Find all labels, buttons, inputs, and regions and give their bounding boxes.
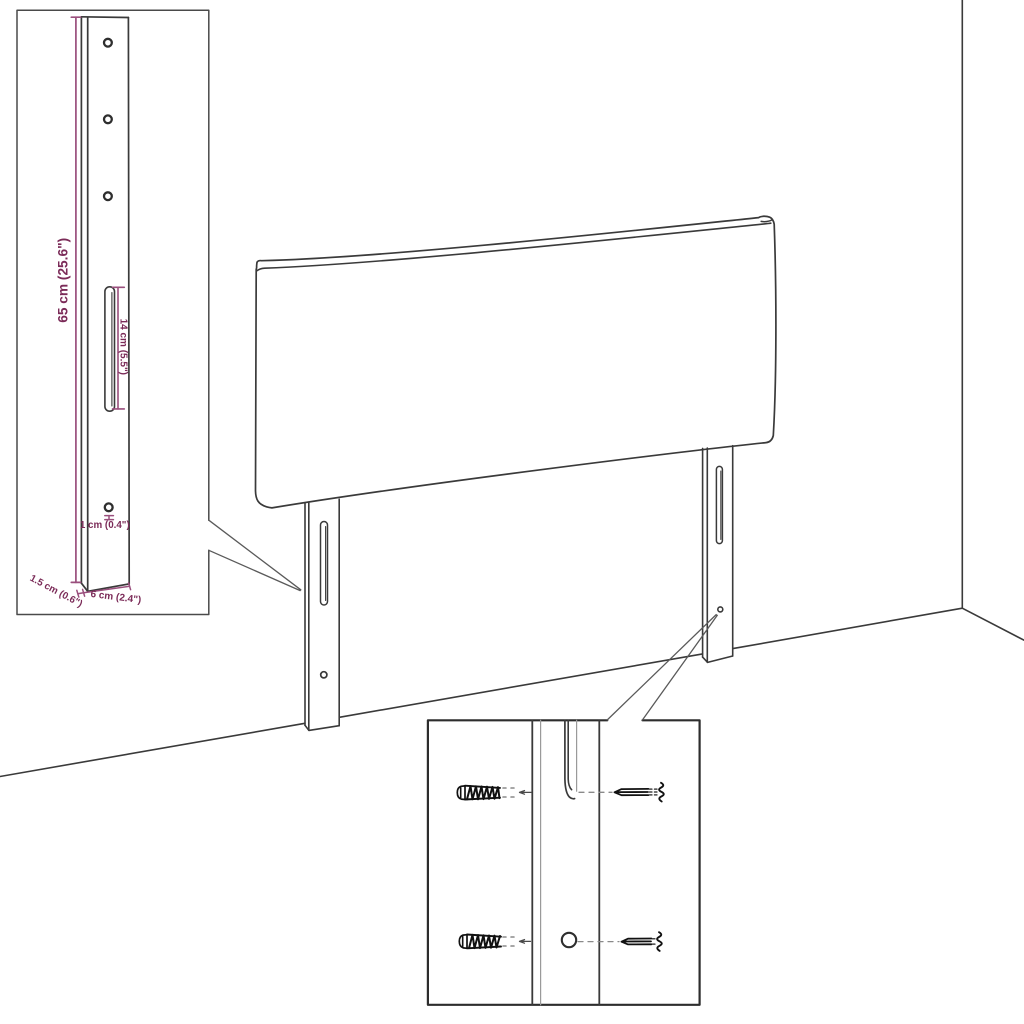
svg-text:14 cm (5.5"): 14 cm (5.5") <box>118 319 129 375</box>
svg-text:65 cm (25.6"): 65 cm (25.6") <box>56 238 71 323</box>
svg-text:1 cm (0.4"): 1 cm (0.4") <box>80 520 130 531</box>
